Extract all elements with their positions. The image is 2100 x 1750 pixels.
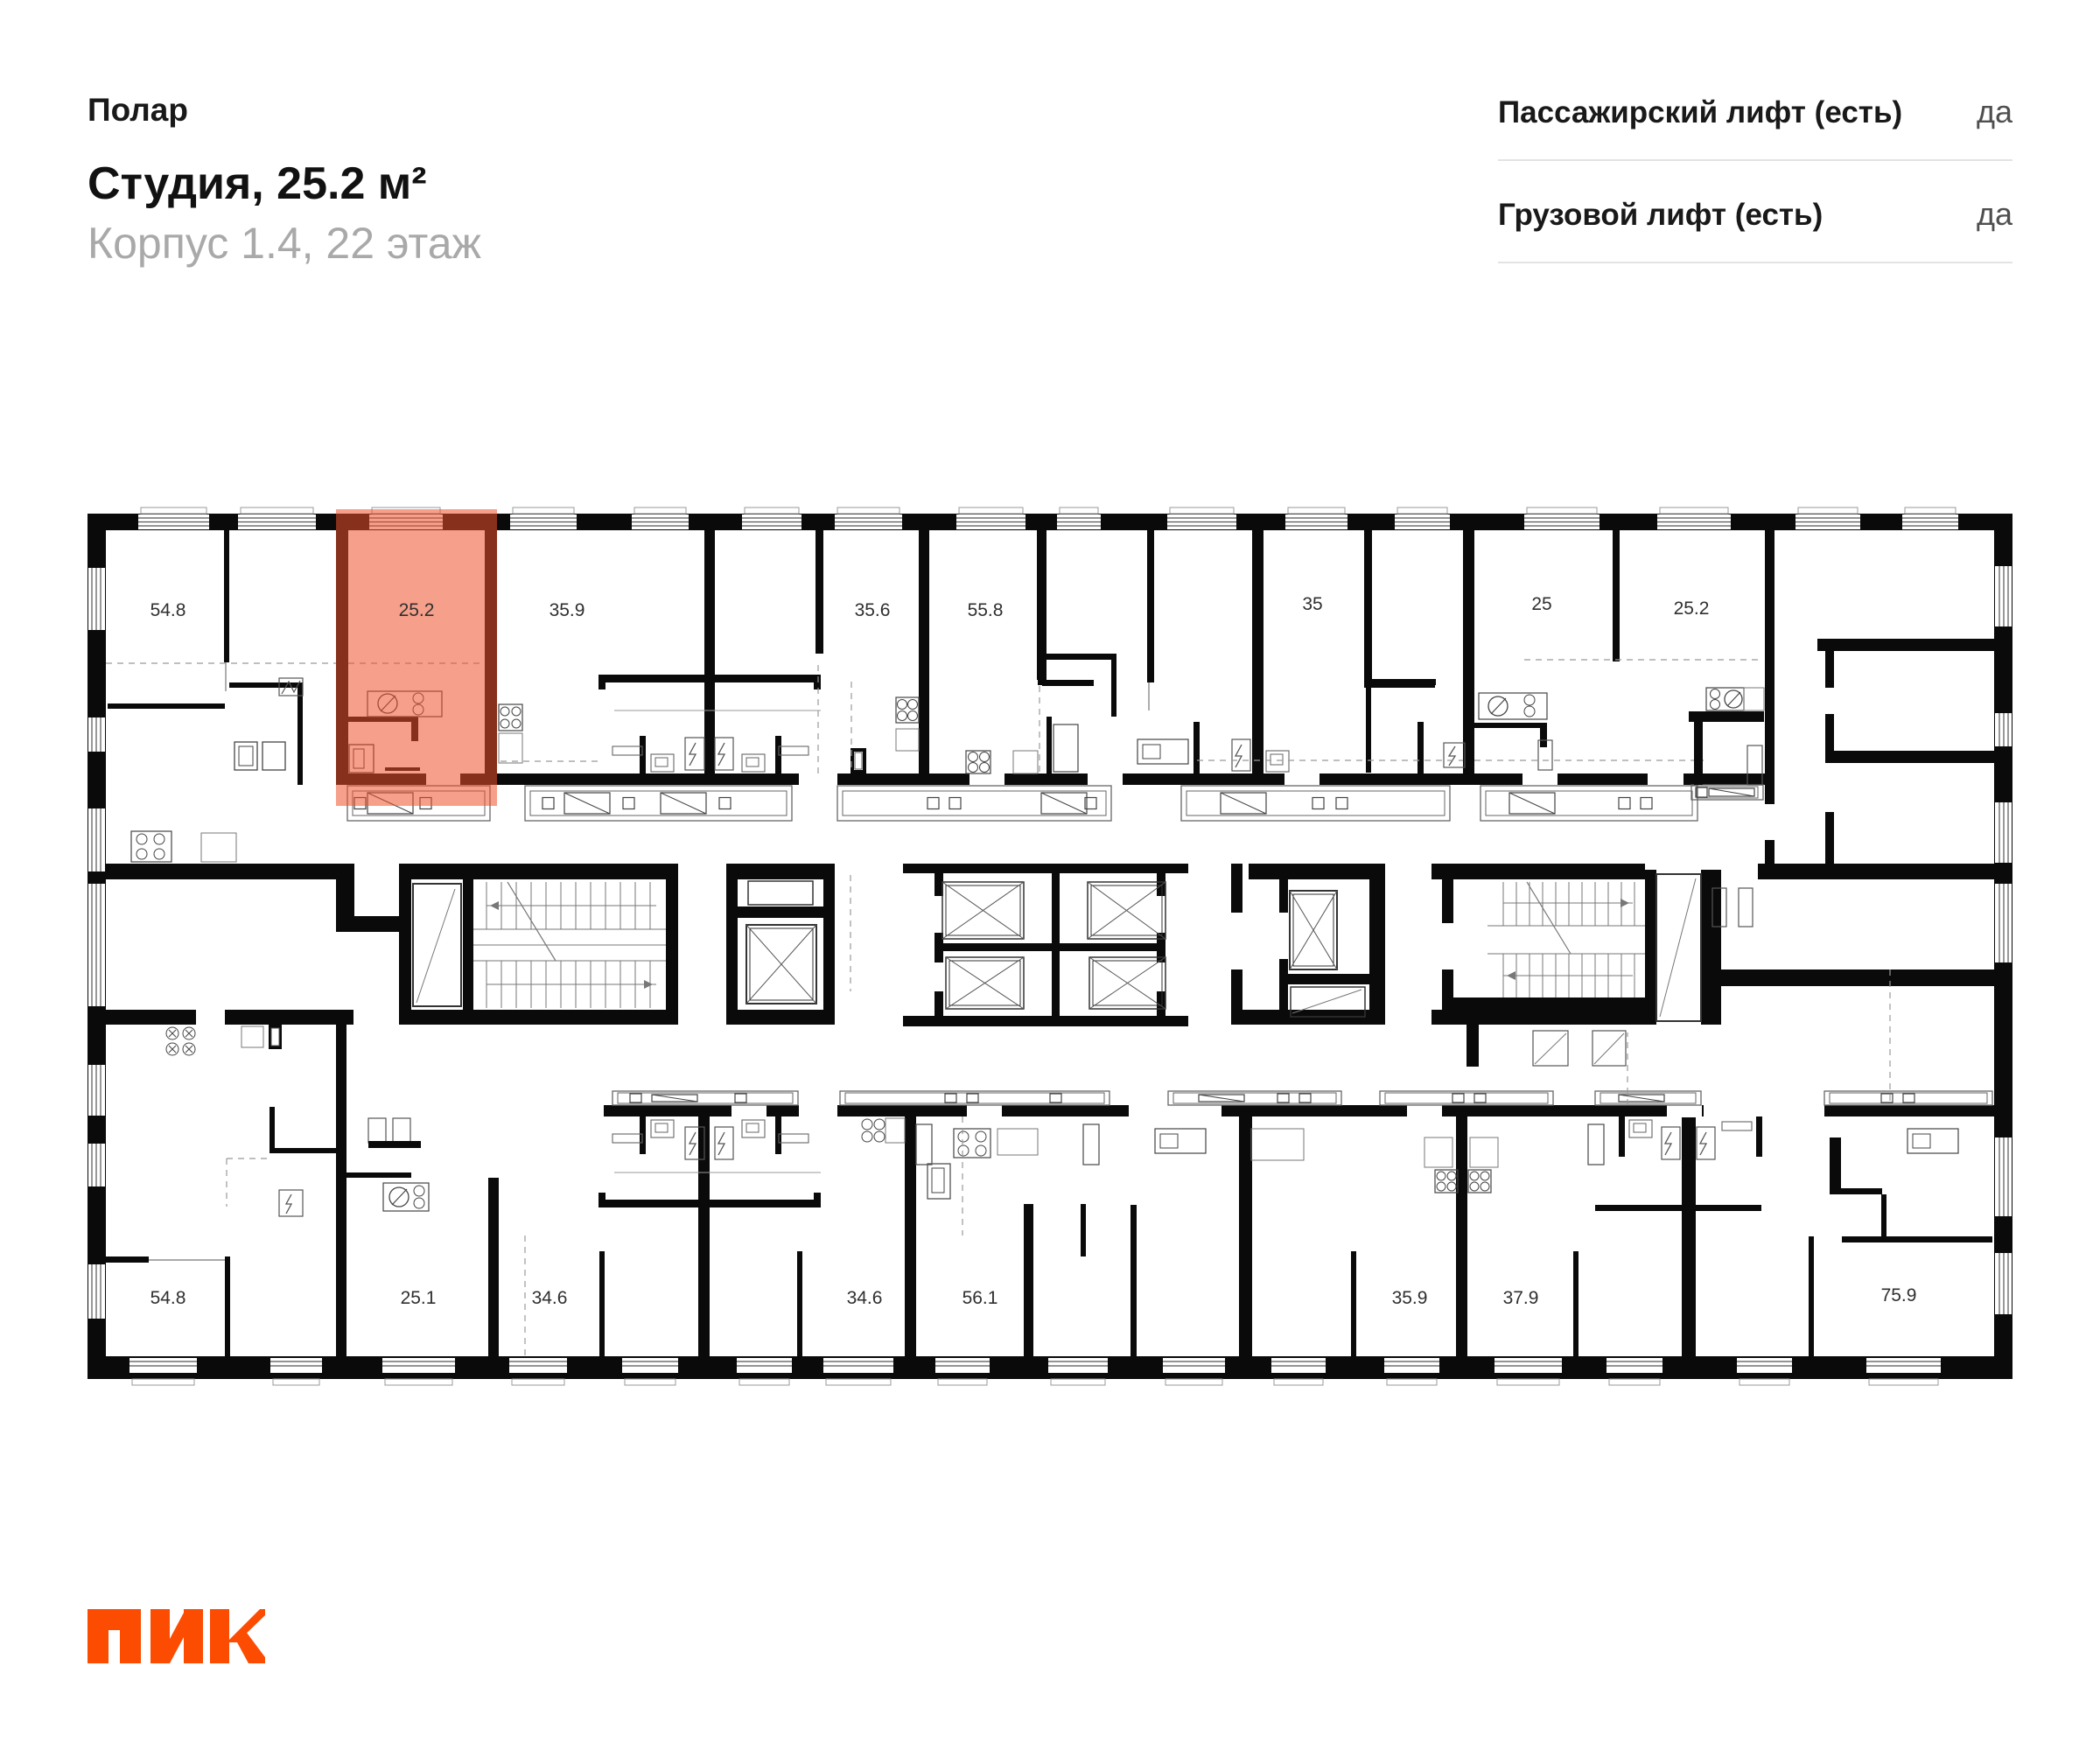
svg-text:35.9: 35.9	[1392, 1288, 1428, 1308]
svg-text:Студия, 25.2 м²: Студия, 25.2 м²	[87, 158, 427, 209]
svg-text:37.9: 37.9	[1503, 1288, 1539, 1308]
svg-text:34.6: 34.6	[847, 1288, 883, 1308]
svg-text:25: 25	[1531, 594, 1551, 614]
svg-text:Корпус 1.4, 22 этаж: Корпус 1.4, 22 этаж	[87, 219, 482, 268]
svg-text:да: да	[1977, 196, 2013, 232]
svg-text:35.9: 35.9	[549, 600, 585, 620]
svg-text:25.2: 25.2	[399, 600, 435, 620]
svg-text:55.8: 55.8	[968, 600, 1004, 620]
svg-text:75.9: 75.9	[1881, 1285, 1917, 1305]
svg-text:56.1: 56.1	[962, 1288, 998, 1308]
svg-text:35.6: 35.6	[855, 600, 891, 620]
svg-text:25.1: 25.1	[401, 1288, 437, 1308]
svg-text:35: 35	[1302, 594, 1322, 614]
svg-text:54.8: 54.8	[150, 600, 186, 620]
svg-text:да: да	[1977, 94, 2013, 129]
svg-text:34.6: 34.6	[532, 1288, 568, 1308]
svg-text:54.8: 54.8	[150, 1288, 186, 1308]
svg-text:Грузовой лифт (есть): Грузовой лифт (есть)	[1498, 198, 1823, 232]
svg-text:25.2: 25.2	[1674, 598, 1710, 619]
svg-text:Пассажирский лифт (есть): Пассажирский лифт (есть)	[1498, 95, 1902, 129]
svg-text:Полар: Полар	[87, 92, 188, 128]
